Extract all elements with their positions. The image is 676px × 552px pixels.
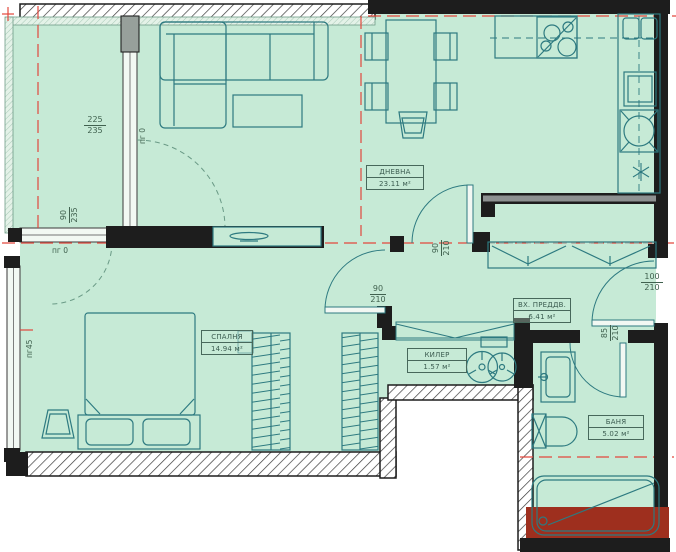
room-label-bedroom: СПАЛНЯ 14.94 м² <box>201 330 253 355</box>
room-area: 14.94 м² <box>202 343 252 354</box>
building-niche <box>396 398 520 552</box>
floor-plan: ДНЕВНА 23.11 м² СПАЛНЯ 14.94 м² ВХ. ПРЕД… <box>0 0 676 552</box>
sill-label-balcony: пг 0 <box>139 116 147 144</box>
dim-hall-door: 90 210 <box>431 231 451 265</box>
room-area: 1.57 м² <box>408 361 466 372</box>
wall-core-gray <box>483 196 656 202</box>
room-name: ДНЕВНА <box>367 166 423 178</box>
room-area: 5.02 м² <box>589 428 643 439</box>
dim-corridor-door: 90 210 <box>360 284 396 304</box>
dim-bath-door: 85 210 <box>600 316 620 350</box>
tv-stand <box>213 227 321 246</box>
room-name: КИЛЕР <box>408 349 466 361</box>
room-name: ВХ. ПРЕДДВ. <box>514 299 570 311</box>
room-label-entry: ВХ. ПРЕДДВ. 6.41 м² <box>513 298 571 323</box>
dim-entry-door: 100 210 <box>634 272 670 292</box>
window-mullion-block <box>121 16 139 52</box>
floor-plan-drawing <box>0 0 676 552</box>
room-area: 23.11 м² <box>367 178 423 189</box>
sill-label-terrace: пг 0 <box>52 247 68 255</box>
sill-label-side: пг45 <box>26 330 34 358</box>
dim-balcony-window: 225 235 <box>74 115 116 135</box>
room-area: 6.41 м² <box>514 311 570 322</box>
room-name: СПАЛНЯ <box>202 331 252 343</box>
wardrobe-right <box>342 333 378 450</box>
room-label-living: ДНЕВНА 23.11 м² <box>366 165 424 190</box>
red-marked-wall <box>526 507 669 538</box>
room-label-bath: БАНЯ 5.02 м² <box>588 415 644 440</box>
dim-bedroom-window: 90 235 <box>59 198 79 232</box>
room-label-closet: КИЛЕР 1.57 м² <box>407 348 467 373</box>
room-name: БАНЯ <box>589 416 643 428</box>
